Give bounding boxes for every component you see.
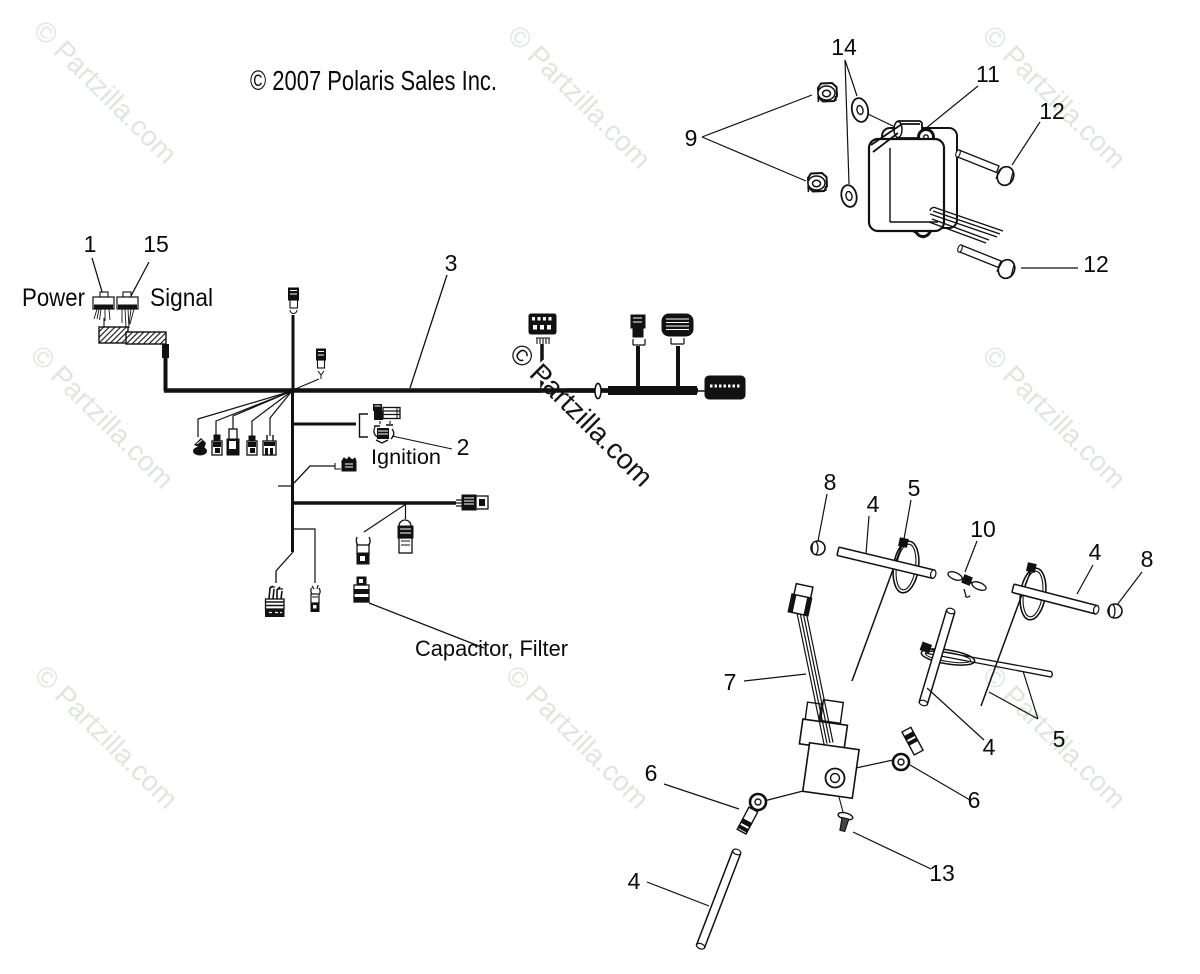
svg-text:Ignition: Ignition bbox=[371, 446, 441, 469]
svg-text:Power: Power bbox=[22, 284, 85, 312]
svg-text:Capacitor, Filter: Capacitor, Filter bbox=[415, 636, 568, 661]
svg-text:15: 15 bbox=[143, 231, 169, 257]
svg-text:8: 8 bbox=[824, 469, 837, 495]
svg-text:4: 4 bbox=[983, 734, 996, 760]
svg-text:Signal: Signal bbox=[150, 284, 213, 312]
svg-text:1: 1 bbox=[84, 231, 97, 257]
svg-text:4: 4 bbox=[867, 491, 880, 517]
svg-text:12: 12 bbox=[1083, 251, 1109, 277]
svg-text:13: 13 bbox=[929, 860, 955, 886]
svg-text:3: 3 bbox=[445, 250, 458, 276]
svg-text:6: 6 bbox=[645, 760, 658, 786]
svg-text:9: 9 bbox=[685, 125, 698, 151]
svg-text:7: 7 bbox=[724, 669, 737, 695]
svg-text:12: 12 bbox=[1039, 98, 1065, 124]
svg-text:14: 14 bbox=[831, 34, 857, 60]
svg-text:8: 8 bbox=[1141, 546, 1154, 572]
svg-text:5: 5 bbox=[908, 475, 921, 501]
svg-text:2: 2 bbox=[457, 434, 470, 460]
svg-text:© 2007 Polaris Sales Inc.: © 2007 Polaris Sales Inc. bbox=[250, 65, 497, 96]
svg-text:11: 11 bbox=[976, 61, 1000, 87]
svg-text:5: 5 bbox=[1053, 726, 1066, 752]
svg-text:4: 4 bbox=[1089, 539, 1102, 565]
svg-text:10: 10 bbox=[970, 516, 996, 542]
svg-text:4: 4 bbox=[628, 868, 641, 894]
